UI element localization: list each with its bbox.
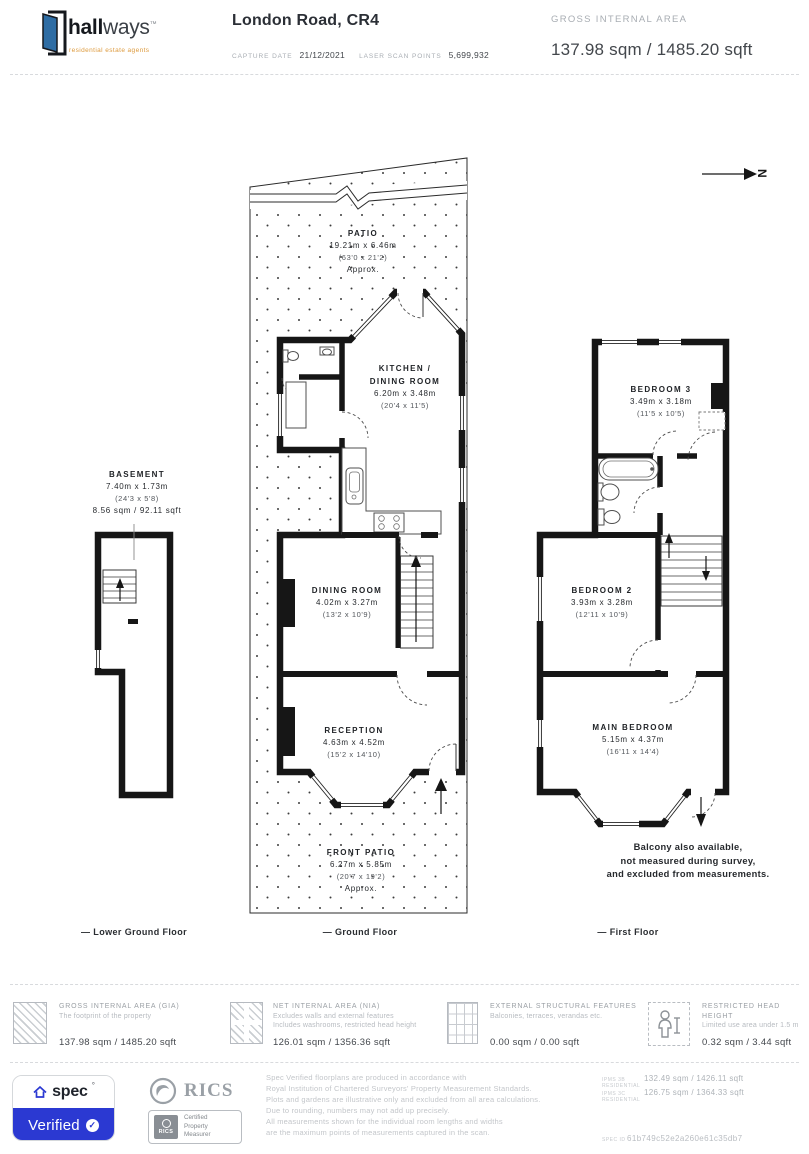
brand-tagline: residential estate agents bbox=[69, 47, 149, 54]
capture-date-label: CAPTURE DATE bbox=[232, 53, 293, 60]
certified-property-measurer-badge: RICS Certified Property Measurer bbox=[148, 1110, 242, 1144]
disclaimer-text: Spec Verified floorplans are produced in… bbox=[266, 1073, 596, 1138]
lower-ground-floor-label: — Lower Ground Floor bbox=[81, 927, 187, 937]
basement-stairs bbox=[103, 570, 136, 603]
basement-label: BASEMENT 7.40m x 1.73m (24'3 x 5'8) 8.56… bbox=[93, 468, 182, 517]
bedroom2-label: BEDROOM 2 3.93m x 3.28m (12'11 x 10'9) bbox=[571, 584, 633, 621]
brand-light: ways bbox=[103, 16, 150, 39]
hallways-door-logo-icon bbox=[41, 10, 67, 56]
ground-floor-label: — Ground Floor bbox=[323, 927, 398, 937]
kitchen-stove bbox=[374, 513, 404, 532]
rhh-person-icon bbox=[648, 1002, 690, 1046]
wc-toilet bbox=[283, 350, 299, 362]
bathtub bbox=[599, 458, 658, 480]
wc-sink bbox=[320, 347, 334, 355]
rics-mini-logo: RICS bbox=[154, 1115, 178, 1139]
nia-desc2: Includes washrooms, restricted head heig… bbox=[273, 1021, 416, 1031]
first-floor-stairs bbox=[661, 533, 722, 606]
gia-value: 137.98 sqm / 1485.20 sqft bbox=[59, 1037, 180, 1048]
north-arrow: N bbox=[702, 168, 769, 180]
ipms-3c-row: IPMS 3C RESIDENTIAL 126.75 sqm / 1364.33… bbox=[602, 1088, 744, 1103]
esf-desc: Balconies, terraces, verandas etc. bbox=[490, 1012, 637, 1022]
main-bedroom-label: MAIN BEDROOM 5.15m x 4.37m (16'11 x 14'4… bbox=[592, 721, 673, 758]
footer-divider bbox=[10, 1062, 799, 1063]
dining-chimney-breast bbox=[277, 579, 295, 627]
front-patio-label: FRONT PATIO 6.27m x 5.85m (20'7 x 19'2) … bbox=[327, 846, 395, 895]
reception-label: RECEPTION 4.63m x 4.52m (15'2 x 14'10) bbox=[323, 724, 385, 761]
rics-logo: RICS bbox=[148, 1076, 233, 1106]
legend-gia: GROSS INTERNAL AREA (GIA) The footprint … bbox=[13, 1002, 180, 1048]
esf-grid-icon bbox=[447, 1002, 478, 1044]
kitchen-dining-label: KITCHEN / DINING ROOM 6.20m x 3.48m (20'… bbox=[370, 362, 441, 412]
rics-lion-icon bbox=[148, 1076, 178, 1106]
nia-desc1: Excludes walls and external features bbox=[273, 1012, 416, 1022]
reception-chimney-breast bbox=[277, 707, 295, 756]
brand-wordmark: hallways™ bbox=[68, 16, 156, 40]
laser-points-label: LASER SCAN POINTS bbox=[359, 53, 441, 60]
brand-trademark: ™ bbox=[150, 21, 157, 28]
legend-divider-top bbox=[10, 984, 799, 985]
balcony-arrow bbox=[696, 797, 706, 827]
laser-points-value: 5,699,932 bbox=[449, 50, 490, 60]
bedroom3-chimney-breast bbox=[711, 383, 727, 409]
legend-rhh: RESTRICTED HEAD HEIGHT Limited use area … bbox=[648, 1002, 809, 1048]
patio-label: PATIO 19.21m x 6.46m (63'0 x 21'2) Appro… bbox=[329, 227, 396, 276]
gia-hatch-icon bbox=[13, 1002, 47, 1044]
ipms-3b-row: IPMS 3B RESIDENTIAL 132.49 sqm / 1426.11… bbox=[602, 1074, 743, 1089]
rics-wordmark: RICS bbox=[184, 1080, 233, 1102]
capture-date-value: 21/12/2021 bbox=[300, 50, 346, 60]
spec-id-row: SPEC ID 61b749c52e2a260e61c35db7 bbox=[602, 1134, 742, 1143]
spec-degree: ° bbox=[92, 1081, 95, 1090]
header-divider bbox=[10, 74, 799, 75]
bedroom3-label: BEDROOM 3 3.49m x 3.18m (11'5 x 10'5) bbox=[630, 383, 692, 420]
north-label: N bbox=[755, 169, 769, 178]
annex-furniture bbox=[286, 382, 306, 428]
rhh-desc: Limited use area under 1.5 m bbox=[702, 1021, 809, 1031]
legend-esf: EXTERNAL STRUCTURAL FEATURES Balconies, … bbox=[447, 1002, 637, 1048]
spec-home-icon bbox=[32, 1085, 48, 1099]
balcony-note: Balcony also available, not measured dur… bbox=[607, 841, 770, 882]
spec-verified-badge: spec ° Verified ✓ bbox=[12, 1075, 115, 1141]
nia-title: NET INTERNAL AREA (NIA) bbox=[273, 1002, 416, 1012]
dining-room-label: DINING ROOM 4.02m x 3.27m (13'2 x 10'9) bbox=[312, 584, 383, 621]
floorplan-page: hallways™ residential estate agents Lond… bbox=[0, 0, 809, 1154]
nia-value: 126.01 sqm / 1356.36 sqft bbox=[273, 1037, 416, 1048]
verified-check-icon: ✓ bbox=[86, 1119, 99, 1132]
page-title: London Road, CR4 bbox=[232, 12, 379, 30]
lower-ground-floor-plan bbox=[97, 524, 170, 795]
legend-nia: NET INTERNAL AREA (NIA) Excludes walls a… bbox=[230, 1002, 416, 1048]
gross-internal-area-label: GROSS INTERNAL AREA bbox=[551, 14, 687, 25]
floorplan-canvas: N bbox=[0, 95, 809, 955]
gross-internal-area-value: 137.98 sqm / 1485.20 sqft bbox=[551, 40, 753, 60]
rhh-value: 0.32 sqm / 3.44 sqft bbox=[702, 1037, 809, 1048]
gia-desc: The footprint of the property bbox=[59, 1012, 180, 1022]
first-floor-label: — First Floor bbox=[597, 927, 658, 937]
nia-puzzle-icon bbox=[230, 1002, 263, 1044]
brand-bold: hall bbox=[68, 16, 103, 39]
spec-brand: spec bbox=[52, 1083, 88, 1101]
bathroom-sink bbox=[598, 483, 619, 501]
capture-meta: CAPTURE DATE 21/12/2021 LASER SCAN POINT… bbox=[232, 50, 489, 60]
bathroom-toilet bbox=[598, 509, 620, 525]
esf-value: 0.00 sqm / 0.00 sqft bbox=[490, 1037, 637, 1048]
gia-title: GROSS INTERNAL AREA (GIA) bbox=[59, 1002, 180, 1012]
rhh-title: RESTRICTED HEAD HEIGHT bbox=[702, 1002, 809, 1021]
esf-title: EXTERNAL STRUCTURAL FEATURES bbox=[490, 1002, 637, 1012]
kitchen-sink bbox=[346, 468, 363, 504]
verified-label: Verified bbox=[28, 1117, 80, 1134]
